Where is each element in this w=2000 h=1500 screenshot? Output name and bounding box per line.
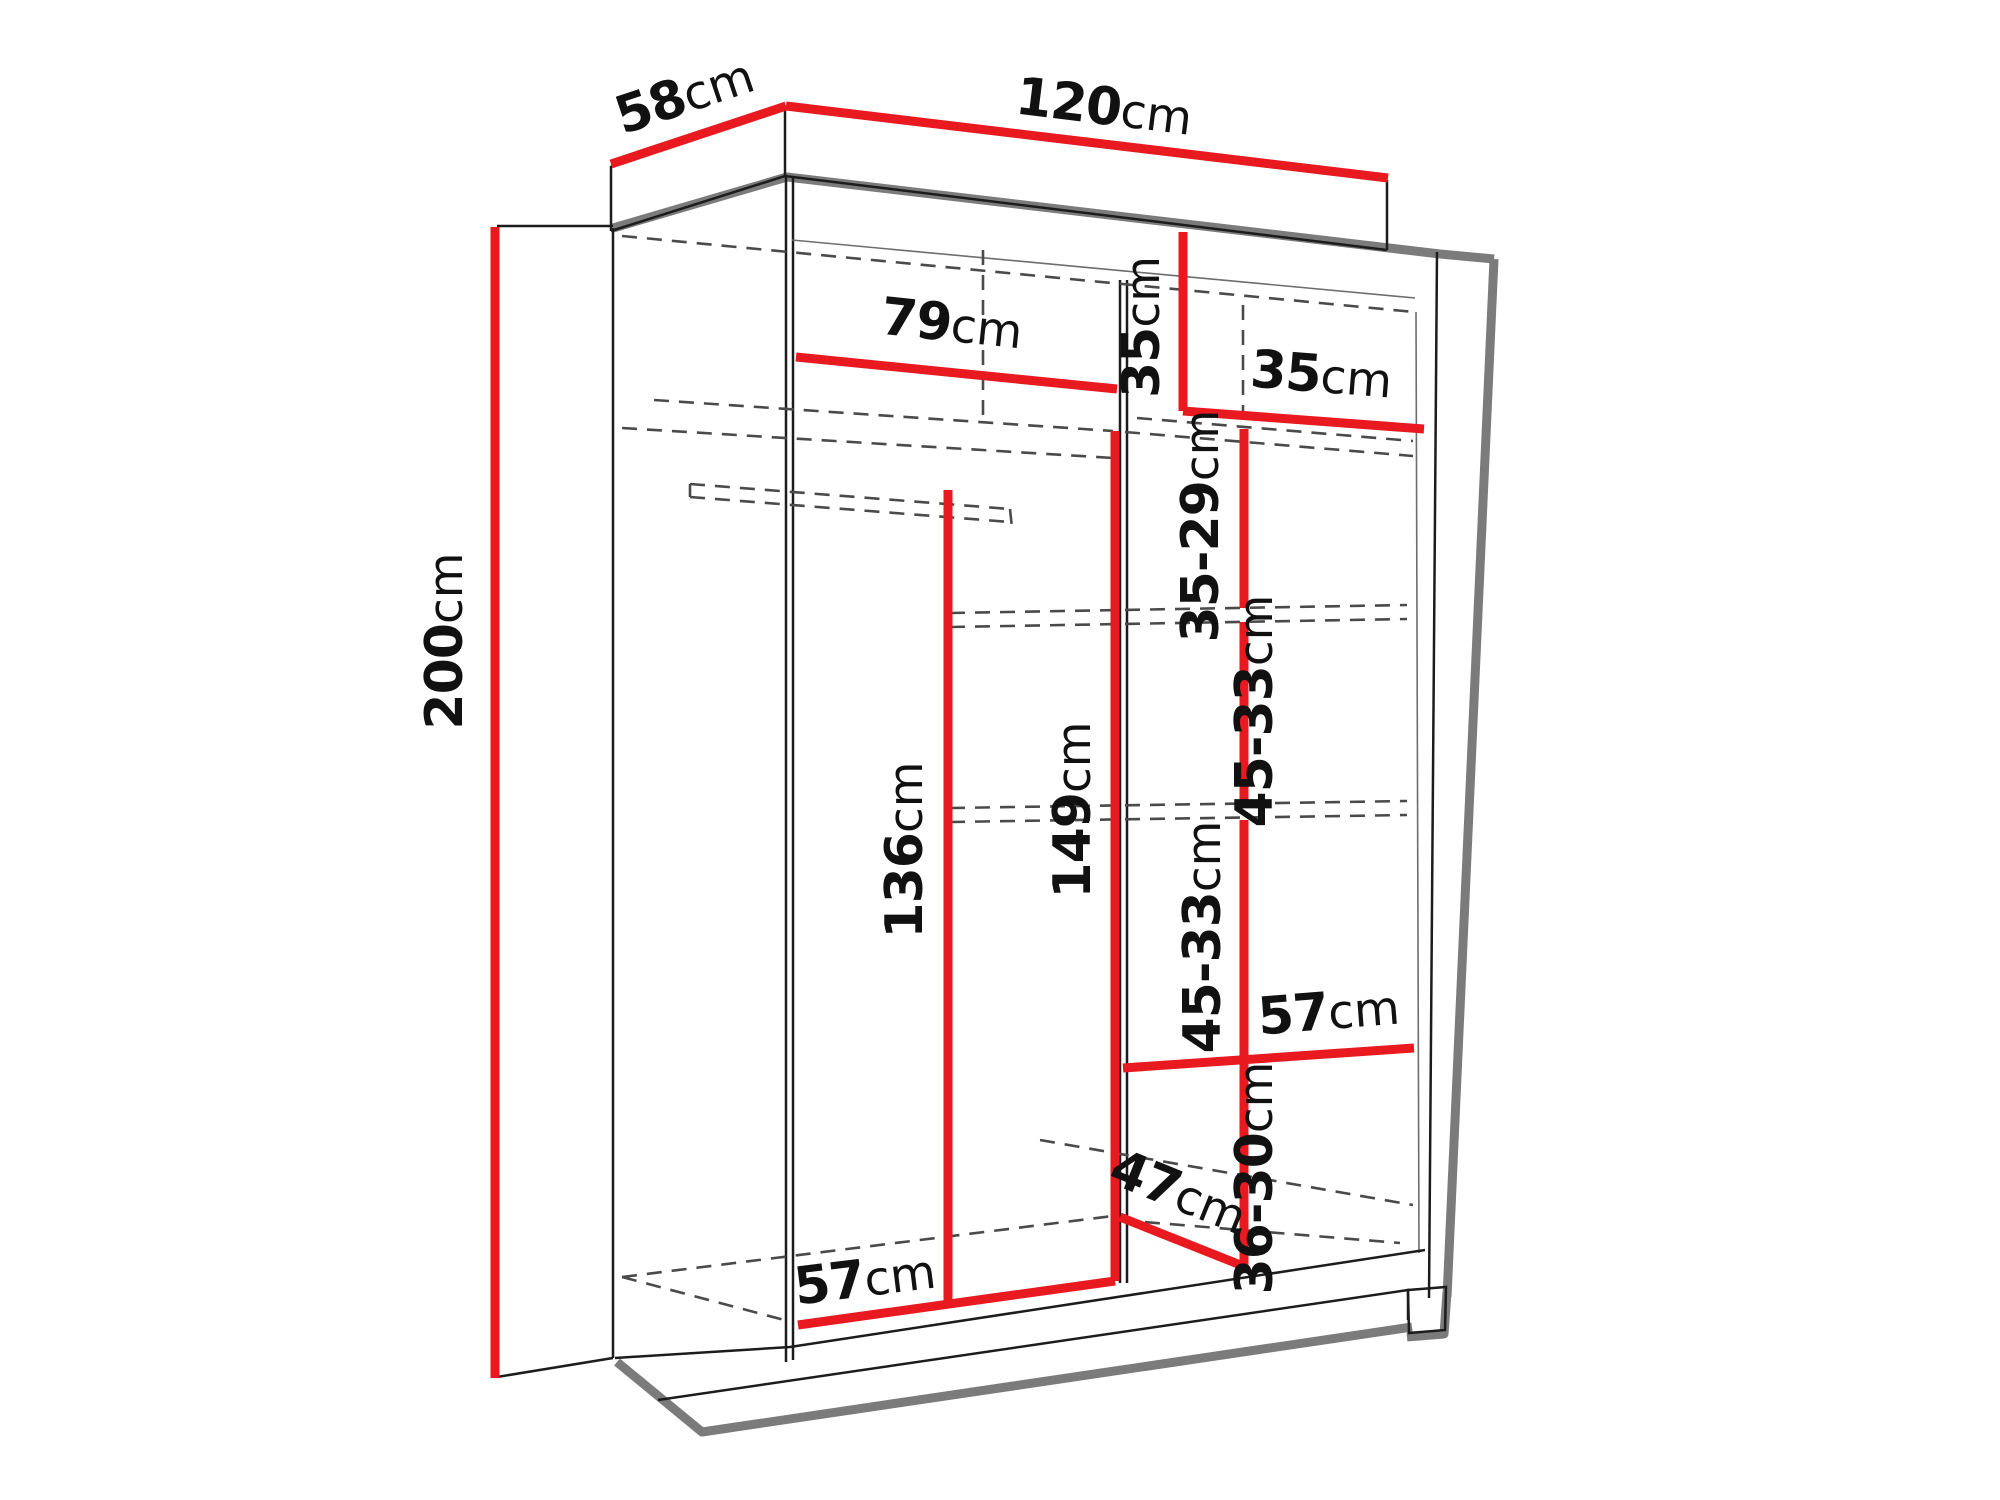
front-left-inner-edge xyxy=(786,177,793,1362)
dim-label-depth-top: 58cm xyxy=(608,45,762,147)
base-shadow xyxy=(617,1327,1412,1432)
dim-label-shelf-gap-3: 45-33cm xyxy=(1173,821,1233,1054)
wardrobe-dimensions-diagram: 58cm120cm200cm79cm35cm35cm35-29cm45-33cm… xyxy=(0,0,2000,1500)
dim-line-79cm xyxy=(796,357,1117,389)
height-dim-connectors xyxy=(497,226,613,1377)
dim-label-left-section-width: 79cm xyxy=(878,287,1025,362)
center-partition xyxy=(1120,280,1127,1283)
right-inner-edge xyxy=(1416,312,1419,1253)
diagram-canvas: 58cm120cm200cm79cm35cm35cm35-29cm45-33cm… xyxy=(0,0,2000,1500)
dim-label-shelf-depth-mid: 57cm xyxy=(1256,977,1402,1048)
crown-top-edge xyxy=(611,108,1387,180)
right-shelf-3 xyxy=(950,801,1407,822)
dim-label-shelf-gap-4: 36-30cm xyxy=(1225,1062,1285,1295)
dim-label-right-column-width: 35cm xyxy=(1248,340,1394,411)
dim-label-left-clear-height: 136cm xyxy=(875,761,935,938)
back-top-edge xyxy=(622,236,1414,312)
right-front-edge xyxy=(1429,252,1437,1298)
hanging-rod xyxy=(690,484,1012,528)
dim-label-shelf-gap-1: 35-29cm xyxy=(1171,410,1231,643)
crown-bottom-edge xyxy=(611,176,1387,250)
left-top-shelf xyxy=(622,400,1113,458)
dim-label-top-compartment-height: 35cm xyxy=(1112,256,1172,398)
dim-label-partition-height: 149cm xyxy=(1043,721,1103,898)
dim-label-shelf-gap-2: 45-33cm xyxy=(1225,595,1285,828)
right-outer-edge xyxy=(1447,259,1494,1297)
dim-label-height-left: 200cm xyxy=(415,552,475,729)
